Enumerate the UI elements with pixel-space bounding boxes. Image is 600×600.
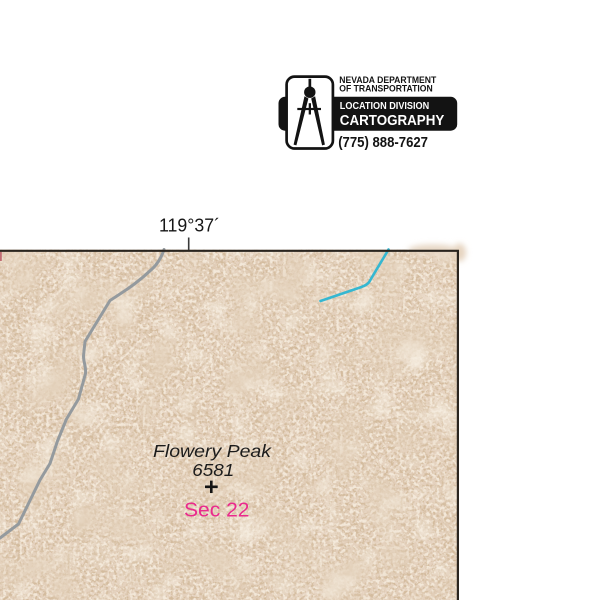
svg-text:Flowery Peak: Flowery Peak — [153, 441, 272, 461]
svg-text:Sec 22: Sec 22 — [184, 500, 250, 522]
svg-text:119°37´: 119°37´ — [159, 215, 220, 235]
svg-text:6581: 6581 — [192, 460, 234, 480]
svg-text:(775) 888-7627: (775) 888-7627 — [338, 134, 428, 151]
svg-text:LOCATION DIVISION: LOCATION DIVISION — [340, 101, 429, 112]
svg-text:CARTOGRAPHY: CARTOGRAPHY — [340, 112, 445, 129]
svg-text:OF TRANSPORTATION: OF TRANSPORTATION — [339, 84, 432, 95]
